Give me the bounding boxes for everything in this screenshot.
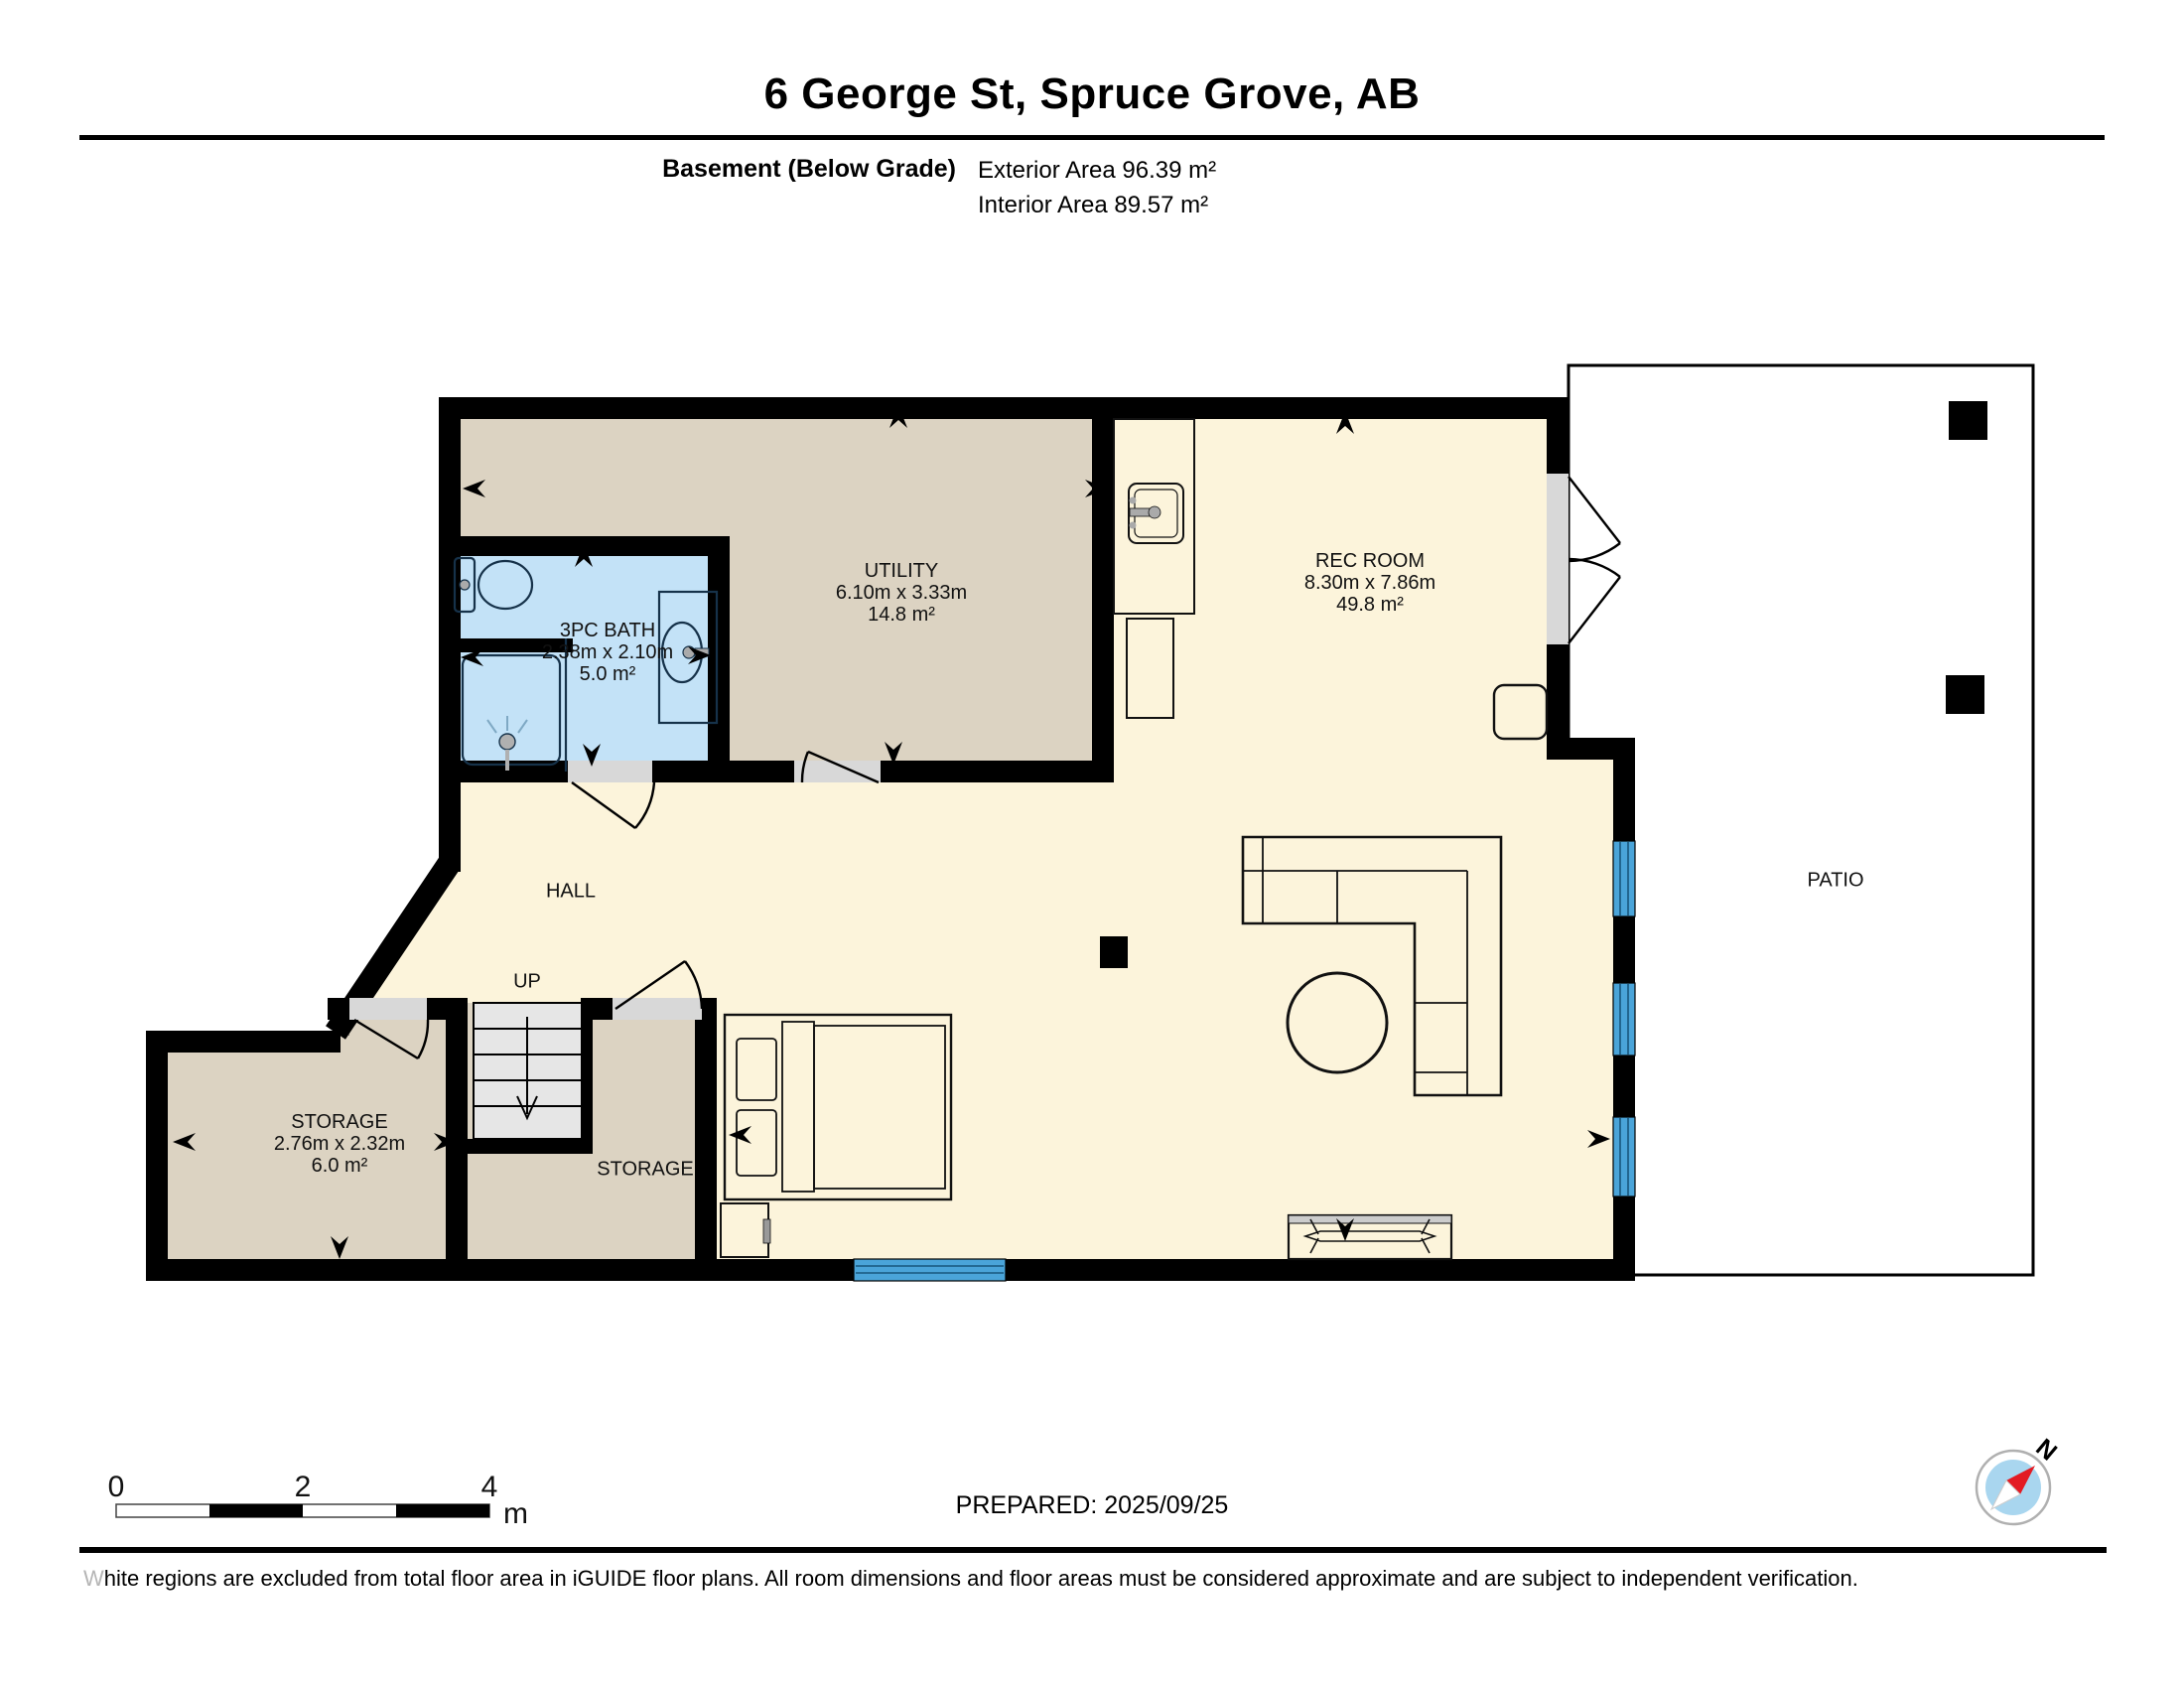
room-label-utility: UTILITY 6.10m x 3.33m 14.8 m² bbox=[836, 560, 967, 626]
corner-cabinet bbox=[1494, 685, 1547, 739]
media-console bbox=[1289, 1215, 1451, 1259]
exterior-area: Exterior Area 96.39 m² bbox=[978, 157, 1216, 185]
floor-register bbox=[1100, 936, 1128, 968]
header-divider bbox=[79, 135, 2105, 140]
room-label-patio: PATIO bbox=[1807, 870, 1863, 893]
footer-divider bbox=[79, 1547, 2107, 1553]
patio-post bbox=[1949, 401, 1987, 440]
stairs-up-label: UP bbox=[513, 971, 541, 994]
floor-name: Basement (Below Grade) bbox=[662, 155, 956, 184]
patio-outline bbox=[1569, 365, 2033, 1275]
page-title: 6 George St, Spruce Grove, AB bbox=[0, 70, 2184, 119]
patio-post bbox=[1946, 675, 1984, 714]
floorplan-drawing bbox=[0, 0, 2184, 1688]
staircase bbox=[474, 1003, 583, 1139]
prepared-date: PREPARED: 2025/09/25 bbox=[0, 1491, 2184, 1520]
room-label-storage-main: STORAGE 2.76m x 2.32m 6.0 m² bbox=[274, 1111, 405, 1177]
room-label-bath: 3PC BATH 2.38m x 2.10m 5.0 m² bbox=[542, 620, 673, 685]
interior-area: Interior Area 89.57 m² bbox=[978, 192, 1208, 219]
room-label-storage-under-stairs: STORAGE bbox=[597, 1159, 693, 1182]
room-label-rec-room: REC ROOM 8.30m x 7.86m 49.8 m² bbox=[1304, 550, 1435, 616]
disclaimer-text: White regions are excluded from total fl… bbox=[83, 1566, 1858, 1592]
room-label-hall: HALL bbox=[546, 881, 596, 904]
floorplan-page: 6 George St, Spruce Grove, AB Basement (… bbox=[0, 0, 2184, 1688]
